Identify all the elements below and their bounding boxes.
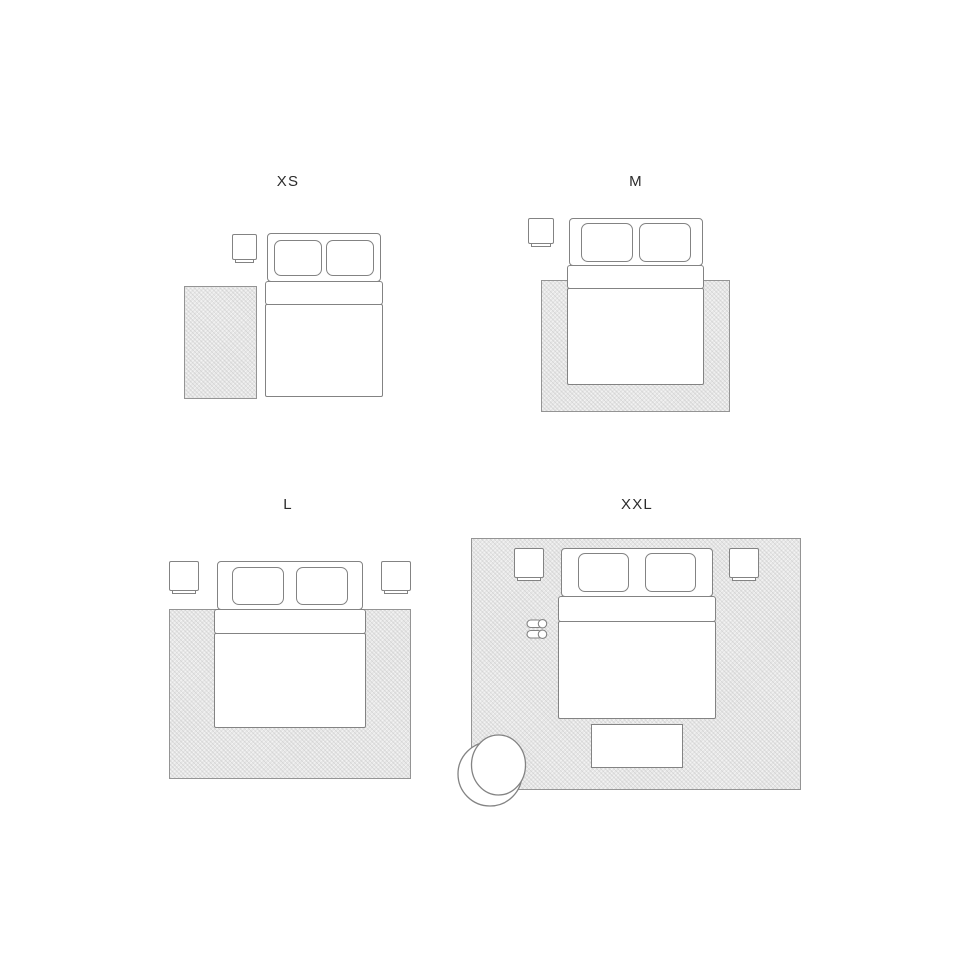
armchair-graphic [456, 733, 530, 809]
nightstand-icon [514, 548, 544, 581]
bed-duvet [558, 621, 716, 719]
pillow-icon [232, 567, 284, 605]
nightstand-icon [169, 561, 199, 594]
nightstand-top [528, 218, 554, 244]
pillow-icon [326, 240, 374, 276]
nightstand-top [232, 234, 257, 260]
nightstand-top [381, 561, 411, 591]
nightstand-top [514, 548, 544, 578]
armchair-seat [472, 735, 526, 795]
bed-headboard [569, 218, 703, 266]
bed-sheet-fold [265, 281, 383, 305]
slippers-icon [526, 618, 550, 641]
armchair-icon [456, 733, 530, 809]
nightstand-icon [729, 548, 759, 581]
pillow-icon [581, 223, 633, 262]
size-label-xxl: XXL [587, 496, 687, 513]
bed-icon [558, 548, 716, 719]
bed-headboard [217, 561, 363, 610]
nightstand-icon [381, 561, 411, 594]
slipper-heel [538, 620, 546, 628]
bed-sheet-fold [558, 596, 716, 622]
bed-icon [265, 233, 383, 397]
nightstand-bar [517, 577, 540, 581]
bed-sheet-fold [567, 265, 704, 289]
nightstand-bar [531, 243, 551, 247]
bed-icon [214, 561, 366, 728]
bed-duvet [214, 633, 366, 728]
nightstand-top [729, 548, 759, 578]
nightstand-bar [384, 590, 407, 594]
slipper-heel [538, 630, 546, 638]
pillow-icon [578, 553, 629, 592]
bench-icon [591, 724, 683, 768]
nightstand-bar [172, 590, 195, 594]
bed-headboard [267, 233, 381, 282]
nightstand-top [169, 561, 199, 591]
pillow-icon [274, 240, 322, 276]
pillow-icon [296, 567, 348, 605]
size-label-xs: XS [238, 173, 338, 190]
size-label-l: L [238, 496, 338, 513]
bed-duvet [567, 288, 704, 385]
bed-headboard [561, 548, 713, 597]
nightstand-bar [732, 577, 755, 581]
rug-icon [184, 286, 257, 399]
bed-duvet [265, 304, 383, 397]
size-label-m: M [586, 173, 686, 190]
slippers-graphic [526, 618, 550, 641]
pillow-icon [639, 223, 691, 262]
pillow-icon [645, 553, 696, 592]
rug-size-guide-diagram: XS M [0, 0, 970, 971]
nightstand-icon [528, 218, 554, 247]
bed-sheet-fold [214, 609, 366, 634]
nightstand-bar [235, 259, 255, 263]
bed-icon [567, 218, 704, 385]
nightstand-icon [232, 234, 257, 263]
